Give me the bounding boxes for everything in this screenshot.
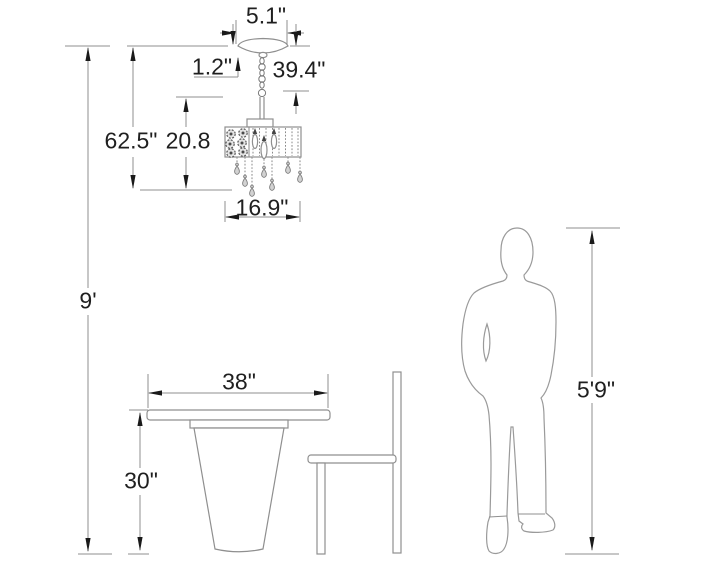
canopy-width-label: 5.1" xyxy=(246,5,286,28)
table-collar xyxy=(190,420,288,428)
canopy-height-label: 1.2" xyxy=(192,56,232,79)
hanging-length-label: 39.4" xyxy=(273,59,326,82)
person-height-label: 5'9" xyxy=(577,379,615,402)
fixture-width-label: 16.9" xyxy=(236,197,289,220)
chair-seat xyxy=(308,455,396,463)
chair-leg xyxy=(317,463,325,554)
stem-plate xyxy=(247,119,273,127)
overall-height-label: 62.5" xyxy=(105,130,158,153)
table-drawing xyxy=(147,410,330,552)
table-height-label: 30" xyxy=(124,470,158,493)
canopy xyxy=(238,39,288,54)
ceiling-height-label: 9' xyxy=(79,290,96,313)
person-figure xyxy=(462,228,556,553)
dimension-diagram: 5.1" 1.2" 39.4" 62.5" 20.8 16.9" 9' 38" … xyxy=(0,0,720,576)
chair-drawing xyxy=(308,372,401,554)
fixture-height-label: 20.8 xyxy=(166,130,211,153)
chain xyxy=(258,58,265,119)
table-width-label: 38" xyxy=(222,371,256,394)
diagram-linework xyxy=(0,0,720,576)
table-pedestal xyxy=(194,428,284,552)
table-top xyxy=(147,410,330,420)
hanging-crystals xyxy=(235,157,303,197)
